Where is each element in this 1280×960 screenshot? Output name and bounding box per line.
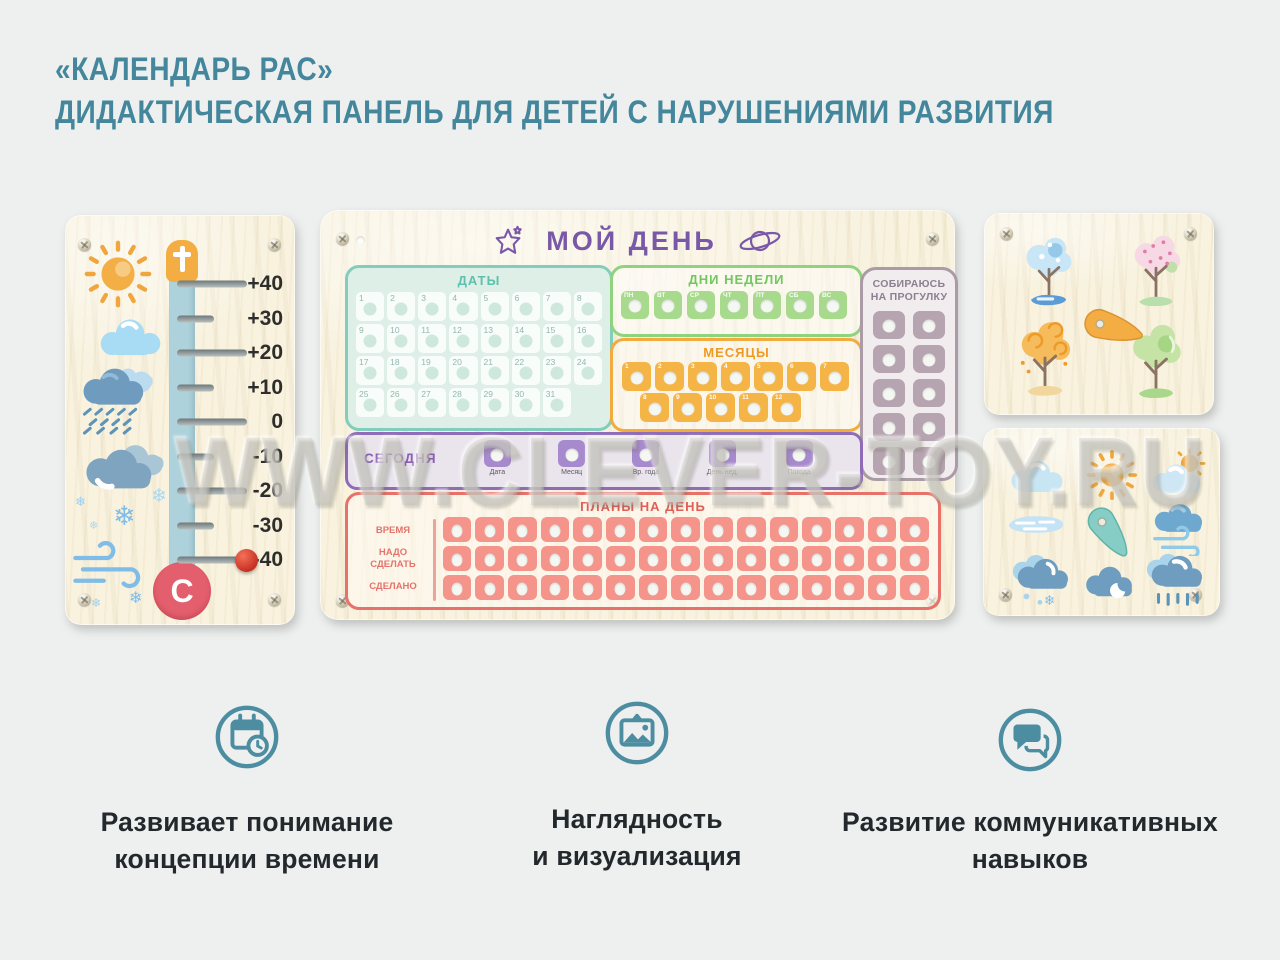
plan-tile[interactable] [606,575,635,600]
season-pointer[interactable] [1079,299,1152,357]
bulb-letter: С [170,573,193,610]
today-tile[interactable] [484,440,511,467]
plan-tile[interactable] [704,575,733,600]
light-cloud-icon [1003,454,1069,498]
date-cell[interactable]: 28 [449,388,477,417]
walk-tile[interactable] [913,311,945,339]
walk-tile[interactable] [873,447,905,475]
date-number: 26 [390,389,399,399]
plan-tile[interactable] [868,575,897,600]
date-number: 16 [577,325,586,335]
date-number: 31 [546,389,555,399]
date-number: 6 [515,293,520,303]
date-number: 20 [452,357,461,367]
plan-tile[interactable] [508,546,537,571]
date-cell[interactable]: 29 [481,388,509,417]
walk-tile[interactable] [873,413,905,441]
date-number: 13 [484,325,493,335]
scale-tick [177,419,247,426]
walk-tile[interactable] [913,413,945,441]
date-number: 27 [421,389,430,399]
date-cell[interactable]: 24 [574,356,602,385]
date-cell[interactable]: 9 [356,324,384,353]
plan-tile[interactable] [573,546,602,571]
scale-label: +20 [247,341,283,365]
date-number: 5 [484,293,489,303]
month-tag: 7 [823,363,827,370]
date-number: 2 [390,293,395,303]
plan-tile[interactable] [802,546,831,571]
month-tile[interactable]: 4 [721,362,750,391]
thermometer-panel: ❄ ❄ ❄ ❄ ❄ ❄ +40 +30 +20 [65,215,295,625]
star-icon [492,224,526,258]
date-number: 18 [390,357,399,367]
date-number: 30 [515,389,524,399]
feature-caption-communication: Развитие коммуникативных навыков [810,804,1250,878]
date-number: 9 [359,325,364,335]
weekdays-row: ПНВТСРЧТПТСБВС [613,287,860,323]
plan-tile[interactable] [671,575,700,600]
month-tag: 2 [658,363,662,370]
date-number: 29 [484,389,493,399]
plan-tile[interactable] [835,546,864,571]
screw-icon [268,238,281,251]
date-cell[interactable]: 20 [449,356,477,385]
saturn-icon [737,225,783,257]
date-cell[interactable]: 7 [543,292,571,321]
panel-title: МОЙ ДЕНЬ [546,226,717,257]
today-slot: День нед. [707,440,739,476]
month-tag: 8 [643,394,647,401]
today-slot-caption: Дата [490,469,506,476]
date-cell[interactable]: 3 [418,292,446,321]
plan-tile[interactable] [770,546,799,571]
date-number: 28 [452,389,461,399]
date-number: 11 [421,325,430,335]
weekdays-section: ДНИ НЕДЕЛИ ПНВТСРЧТПТСБВС [610,265,863,337]
date-cell[interactable]: 21 [481,356,509,385]
today-slot-caption: Вр. года [633,469,660,476]
winter-tree-icon [1020,235,1078,307]
date-cell[interactable]: 11 [418,324,446,353]
date-number: 22 [515,357,524,367]
plan-tile[interactable] [443,575,472,600]
today-slot-caption: Погода [788,469,811,476]
sun-icon [1083,446,1141,504]
date-number: 8 [577,293,582,303]
page-title: «КАЛЕНДАРЬ РАС» ДИДАКТИЧЕСКАЯ ПАНЕЛЬ ДЛЯ… [55,48,1054,134]
weekday-tile[interactable]: ПН [621,291,649,319]
dates-label: ДАТЫ [348,273,610,288]
month-tag: 12 [775,394,782,401]
scale-label: -30 [253,514,283,538]
weekday-tile[interactable]: СБ [786,291,814,319]
plan-tile[interactable] [475,517,504,542]
months-section: МЕСЯЦЫ 1234567 89101112 [610,338,863,432]
date-cell[interactable]: 14 [512,324,540,353]
plan-tile[interactable] [802,517,831,542]
date-cell[interactable]: 5 [481,292,509,321]
svg-text:❄: ❄ [1044,593,1055,608]
today-slot-caption: Месяц [561,469,582,476]
weekday-tag: ПН [624,292,633,299]
autumn-tree-icon [1016,319,1074,397]
today-slot: Вр. года [632,440,659,476]
temperature-knob[interactable] [235,549,258,572]
month-tile[interactable]: 5 [754,362,783,391]
plan-tile[interactable] [541,517,570,542]
plans-label: ПЛАНЫ НА ДЕНЬ [348,499,938,514]
weekday-tile[interactable]: ВТ [654,291,682,319]
weekday-tag: ВТ [657,292,665,299]
scale-label: 0 [271,410,283,434]
plan-tile[interactable] [508,575,537,600]
date-cell[interactable]: 27 [418,388,446,417]
plan-tile[interactable] [835,575,864,600]
date-number: 24 [577,357,586,367]
dates-section: ДАТЫ 12345678910111213141516171819202122… [345,265,613,431]
month-tile[interactable]: 3 [688,362,717,391]
scale-tick [177,281,247,288]
feature-caption-time: Развивает понимание концепции времени [47,804,447,878]
main-panel-header: МОЙ ДЕНЬ [320,224,955,258]
wind-cloud-icon [1147,504,1209,556]
scale-label: +10 [247,376,283,400]
plan-tile[interactable] [770,517,799,542]
today-tile[interactable] [558,440,585,467]
plan-tile[interactable] [639,575,668,600]
walk-grid [863,304,955,482]
plan-tile[interactable] [443,546,472,571]
weekday-tag: СБ [789,292,798,299]
plan-tile[interactable] [737,546,766,571]
weekday-tile[interactable]: ЧТ [720,291,748,319]
date-cell[interactable]: 22 [512,356,540,385]
plan-tile[interactable] [541,546,570,571]
plan-tile[interactable] [606,517,635,542]
plan-row-done [443,575,930,600]
date-number: 15 [546,325,555,335]
plan-tile[interactable] [541,575,570,600]
date-cell[interactable]: 15 [543,324,571,353]
walk-tile[interactable] [913,447,945,475]
plans-body: ВРЕМЯНАДО СДЕЛАТЬСДЕЛАНО [348,514,938,601]
walk-tile[interactable] [873,379,905,407]
plan-tile[interactable] [639,546,668,571]
walk-tile[interactable] [873,345,905,373]
chat-icon [995,705,1065,775]
scale-tick [177,522,214,529]
puddle-icon [1001,510,1071,540]
date-cell[interactable]: 1 [356,292,384,321]
dates-grid: 1234567891011121314151617181920212223242… [348,288,610,421]
plans-divider [433,519,436,601]
date-number: 10 [390,325,399,335]
today-tile[interactable] [709,440,736,467]
plan-tile[interactable] [671,546,700,571]
plan-row-label: ВРЕМЯ [356,525,430,537]
weekday-tag: ПТ [756,292,765,299]
product-card: «КАЛЕНДАРЬ РАС» ДИДАКТИЧЕСКАЯ ПАНЕЛЬ ДЛЯ… [0,0,1280,960]
date-cell[interactable]: 30 [512,388,540,417]
walk-tile[interactable] [913,379,945,407]
months-row1: 1234567 [613,360,860,391]
title-line2: ДИДАКТИЧЕСКАЯ ПАНЕЛЬ ДЛЯ ДЕТЕЙ С НАРУШЕН… [55,94,1054,130]
date-cell[interactable]: 4 [449,292,477,321]
plan-tile[interactable] [835,517,864,542]
date-cell[interactable]: 23 [543,356,571,385]
date-cell[interactable]: 8 [574,292,602,321]
today-slot: Дата [484,440,511,476]
today-tile[interactable] [786,440,813,467]
month-tile[interactable]: 11 [739,393,768,422]
month-tag: 4 [724,363,728,370]
snow-cloud-icon: ❄ [1007,554,1071,610]
date-number: 1 [359,293,364,303]
plan-tile[interactable] [802,575,831,600]
months-row2: 89101112 [613,391,860,422]
date-cell[interactable]: 18 [387,356,415,385]
date-number: 7 [546,293,551,303]
image-icon [602,698,672,768]
month-tile[interactable]: 10 [706,393,735,422]
today-label: СЕГОДНЯ [364,451,437,466]
weekday-tag: СР [690,292,699,299]
month-tile[interactable]: 8 [640,393,669,422]
scale-tick [177,488,247,495]
title-line1: «КАЛЕНДАРЬ РАС» [55,51,333,87]
scale-label: +30 [247,307,283,331]
weekday-tile[interactable]: ПТ [753,291,781,319]
today-slot-caption: День нед. [707,469,739,476]
weekdays-label: ДНИ НЕДЕЛИ [613,272,860,287]
scale-label: -20 [253,479,283,503]
walk-section: СОБИРАЮСЬ НА ПРОГУЛКУ [860,267,958,481]
month-tag: 5 [757,363,761,370]
thermometer-cap [166,240,198,282]
month-tag: 1 [625,363,629,370]
month-tile[interactable]: 2 [655,362,684,391]
screw-icon [78,593,91,606]
date-number: 17 [359,357,368,367]
scale-tick [177,350,247,357]
month-tile[interactable]: 12 [772,393,801,422]
months-label: МЕСЯЦЫ [613,345,860,360]
plan-tile[interactable] [639,517,668,542]
plan-tile[interactable] [868,517,897,542]
month-tile[interactable]: 7 [820,362,849,391]
date-number: 23 [546,357,555,367]
date-number: 21 [484,357,493,367]
plan-tile[interactable] [704,546,733,571]
main-panel: МОЙ ДЕНЬ ДАТЫ 12345678910111213141516171… [320,210,955,620]
plan-tile[interactable] [475,546,504,571]
plan-tile[interactable] [443,517,472,542]
date-number: 19 [421,357,430,367]
plan-tile[interactable] [704,517,733,542]
weekday-tile[interactable]: СР [687,291,715,319]
date-cell[interactable]: 25 [356,388,384,417]
weather-pointer[interactable] [1077,498,1144,570]
plan-tile[interactable] [900,546,929,571]
plan-rows [443,517,930,601]
plan-tile[interactable] [573,575,602,600]
date-number: 14 [515,325,524,335]
today-slots: Дата Месяц Вр. года День нед. Погода [437,435,860,476]
walk-label: СОБИРАЮСЬ НА ПРОГУЛКУ [863,278,955,304]
weekday-tile[interactable]: ВС [819,291,847,319]
walk-tile[interactable] [913,345,945,373]
date-number: 25 [359,389,368,399]
today-tile[interactable] [632,440,659,467]
plan-tile[interactable] [671,517,700,542]
plan-row-label: НАДО СДЕЛАТЬ [356,547,430,571]
plan-tile[interactable] [475,575,504,600]
month-tag: 6 [790,363,794,370]
month-tag: 10 [709,394,716,401]
plan-tile[interactable] [900,575,929,600]
scale-tick [177,315,214,322]
plans-section: ПЛАНЫ НА ДЕНЬ ВРЕМЯНАДО СДЕЛАТЬСДЕЛАНО [345,492,941,610]
feature-caption-visual: Наглядность и визуализация [457,801,817,875]
screw-icon [268,593,281,606]
date-number: 12 [452,325,461,335]
date-cell[interactable]: 26 [387,388,415,417]
screw-icon [1000,227,1013,240]
month-tile[interactable]: 1 [622,362,651,391]
plan-tile[interactable] [737,575,766,600]
snowflake-icon: ❄ [129,591,142,607]
today-section: СЕГОДНЯ Дата Месяц Вр. года День нед. По… [345,432,863,490]
today-slot: Погода [786,440,813,476]
plan-row-todo [443,546,930,571]
month-tag: 11 [742,394,749,401]
date-cell[interactable]: 19 [418,356,446,385]
plan-tile[interactable] [868,546,897,571]
date-cell[interactable]: 12 [449,324,477,353]
plan-row-time [443,517,930,542]
month-tag: 3 [691,363,695,370]
sun-cloud-icon [1149,448,1207,500]
rain-cloud-icon [1141,552,1205,610]
plan-tile[interactable] [770,575,799,600]
month-tile[interactable]: 9 [673,393,702,422]
plan-tile[interactable] [606,546,635,571]
date-cell[interactable]: 31 [543,388,571,417]
scale-tick [177,453,214,460]
date-cell[interactable]: 6 [512,292,540,321]
date-cell[interactable]: 10 [387,324,415,353]
calendar-clock-icon [212,702,282,772]
plan-tile[interactable] [573,517,602,542]
scale-label: +40 [247,272,283,296]
today-slot: Месяц [558,440,585,476]
snowflake-icon: ❄ [91,597,101,609]
date-number: 4 [452,293,457,303]
plan-row-labels: ВРЕМЯНАДО СДЕЛАТЬСДЕЛАНО [356,517,430,601]
month-tag: 9 [676,394,680,401]
walk-tile[interactable] [873,311,905,339]
plan-tile[interactable] [900,517,929,542]
date-number: 3 [421,293,426,303]
scale-tick [177,384,214,391]
weekday-tag: ВС [822,292,831,299]
date-cell[interactable]: 16 [574,324,602,353]
date-cell[interactable]: 17 [356,356,384,385]
plan-tile[interactable] [508,517,537,542]
plan-tile[interactable] [737,517,766,542]
date-cell[interactable]: 2 [387,292,415,321]
plan-row-label: СДЕЛАНО [356,581,430,593]
scale-label: -10 [253,445,283,469]
seasons-panel [984,213,1214,415]
date-cell[interactable]: 13 [481,324,509,353]
weather-panel: ❄ [983,428,1220,616]
month-tile[interactable]: 6 [787,362,816,391]
weekday-tag: ЧТ [723,292,732,299]
thermometer-bulb: С [153,562,211,620]
spring-tree-icon [1126,233,1186,307]
